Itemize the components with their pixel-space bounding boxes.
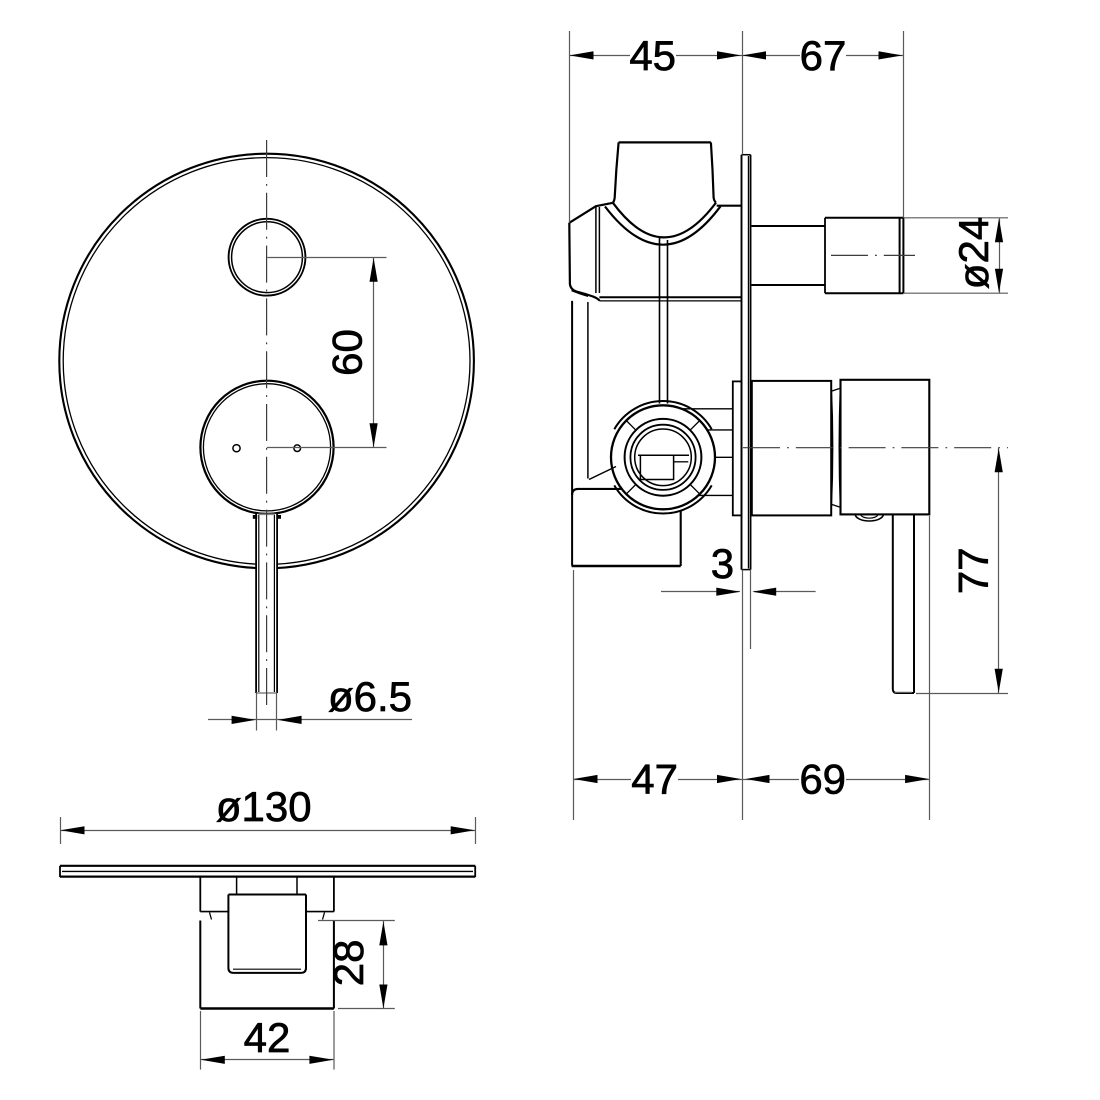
svg-text:77: 77: [949, 547, 996, 594]
svg-text:28: 28: [325, 940, 372, 987]
svg-text:67: 67: [800, 32, 847, 79]
svg-text:3: 3: [711, 540, 734, 587]
svg-text:ø24: ø24: [950, 217, 997, 289]
svg-text:60: 60: [324, 329, 371, 376]
svg-text:42: 42: [244, 1014, 291, 1061]
svg-text:ø6.5: ø6.5: [328, 673, 412, 720]
svg-text:47: 47: [631, 756, 678, 803]
svg-text:ø130: ø130: [216, 783, 312, 830]
svg-text:69: 69: [799, 756, 846, 803]
svg-text:45: 45: [629, 32, 676, 79]
